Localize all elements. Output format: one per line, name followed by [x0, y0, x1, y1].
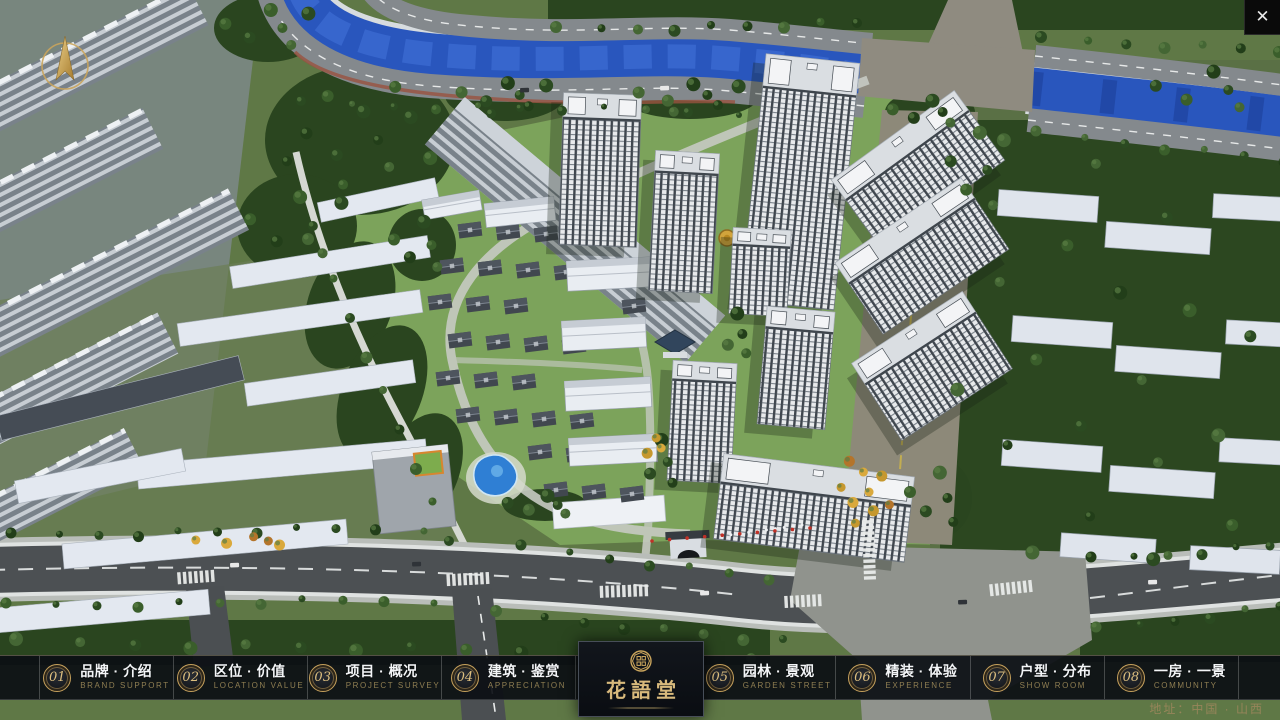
- nav-number-badge: 04: [451, 664, 479, 692]
- nav-group-left: 01 品牌 · 介绍 BRAND SUPPORT 02 区位 · 价值 LOCA…: [39, 656, 576, 699]
- nav-number-badge: 02: [177, 664, 205, 692]
- nav-item-sublabel: COMMUNITY: [1154, 682, 1218, 691]
- nav-item-architecture[interactable]: 04 建筑 · 鉴赏 APPRECIATION: [442, 656, 576, 699]
- nav-item-labels: 户型 · 分布 SHOW ROOM: [1020, 664, 1092, 690]
- nav-item-label: 项目 · 概况: [346, 664, 418, 679]
- nav-number-badge: 03: [309, 664, 337, 692]
- compass-north-icon: [36, 30, 94, 94]
- nav-item-labels: 项目 · 概况 PROJECT SURVEY: [346, 664, 441, 690]
- nav-item-labels: 一房 · 一景 COMMUNITY: [1154, 664, 1226, 690]
- nav-item-labels: 精装 · 体验 EXPERIENCE: [885, 664, 957, 690]
- nav-item-sublabel: LOCATION VALUE: [214, 682, 305, 691]
- nav-item-floorplans[interactable]: 07 户型 · 分布 SHOW ROOM: [971, 656, 1105, 699]
- nav-number-badge: 08: [1117, 664, 1145, 692]
- nav-item-label: 一房 · 一景: [1154, 664, 1226, 679]
- brand-logo-panel[interactable]: 花語堂: [578, 641, 704, 717]
- nav-number-badge: 01: [43, 664, 71, 692]
- nav-number-badge: 07: [983, 664, 1011, 692]
- nav-item-label: 户型 · 分布: [1020, 664, 1092, 679]
- project-address: 地址：中国 · 山西: [1149, 700, 1264, 717]
- nav-item-sublabel: SHOW ROOM: [1020, 682, 1086, 691]
- nav-item-label: 区位 · 价值: [214, 664, 286, 679]
- close-button[interactable]: ✕: [1244, 0, 1280, 35]
- nav-item-sublabel: EXPERIENCE: [885, 682, 953, 691]
- aerial-masterplan-render[interactable]: [0, 0, 1280, 720]
- nav-item-labels: 区位 · 价值 LOCATION VALUE: [214, 664, 305, 690]
- nav-item-brand[interactable]: 01 品牌 · 介绍 BRAND SUPPORT: [40, 656, 174, 699]
- nav-number-badge: 05: [706, 664, 734, 692]
- nav-group-right: 05 园林 · 景观 GARDEN STREET 06 精装 · 体验 EXPE…: [702, 656, 1239, 699]
- nav-item-label: 品牌 · 介绍: [80, 664, 152, 679]
- nav-item-garden[interactable]: 05 园林 · 景观 GARDEN STREET: [702, 656, 836, 699]
- brand-seal-icon: [630, 650, 652, 672]
- nav-number-badge: 06: [848, 664, 876, 692]
- nav-item-label: 建筑 · 鉴赏: [488, 664, 560, 679]
- nav-item-sublabel: PROJECT SURVEY: [346, 682, 441, 691]
- nav-item-labels: 建筑 · 鉴赏 APPRECIATION: [488, 664, 566, 690]
- brand-divider: [608, 707, 674, 709]
- nav-item-sublabel: GARDEN STREET: [743, 682, 832, 691]
- nav-item-location[interactable]: 02 区位 · 价值 LOCATION VALUE: [174, 656, 308, 699]
- brand-name: 花語堂: [601, 674, 681, 703]
- nav-item-views[interactable]: 08 一房 · 一景 COMMUNITY: [1105, 656, 1239, 699]
- nav-item-interior[interactable]: 06 精装 · 体验 EXPERIENCE: [836, 656, 970, 699]
- nav-item-sublabel: APPRECIATION: [488, 682, 566, 691]
- nav-item-sublabel: BRAND SUPPORT: [80, 682, 170, 691]
- nav-item-labels: 品牌 · 介绍 BRAND SUPPORT: [80, 664, 170, 690]
- nav-item-labels: 园林 · 景观 GARDEN STREET: [743, 664, 832, 690]
- nav-item-label: 精装 · 体验: [885, 664, 957, 679]
- nav-item-project[interactable]: 03 项目 · 概况 PROJECT SURVEY: [308, 656, 442, 699]
- nav-item-label: 园林 · 景观: [743, 664, 815, 679]
- sales-presentation-screen: ✕ 01 品牌 · 介绍 BRAND SUPPORT 02 区位 · 价值 LO…: [0, 0, 1280, 720]
